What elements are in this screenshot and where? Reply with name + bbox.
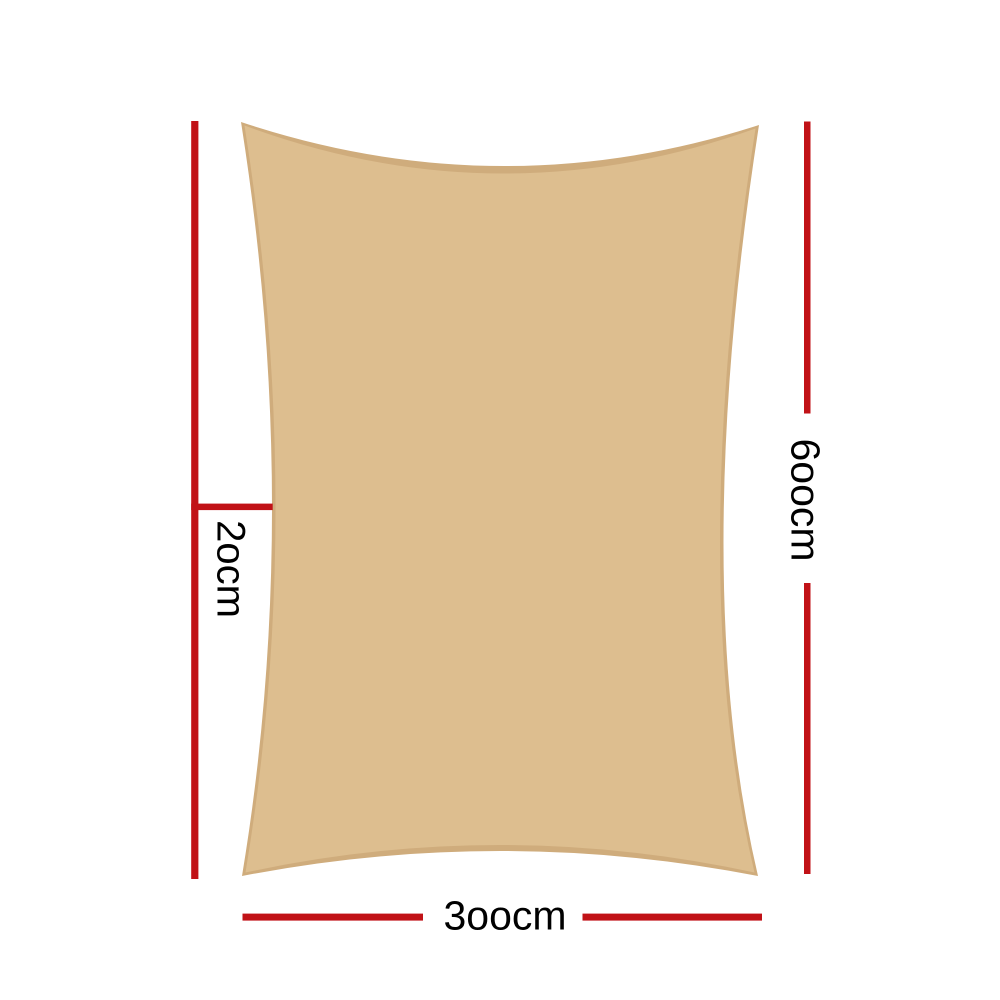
svg-text:2ocm: 2ocm (209, 520, 253, 618)
svg-text:3oocm: 3oocm (443, 893, 566, 939)
svg-text:6oocm: 6oocm (783, 438, 829, 561)
